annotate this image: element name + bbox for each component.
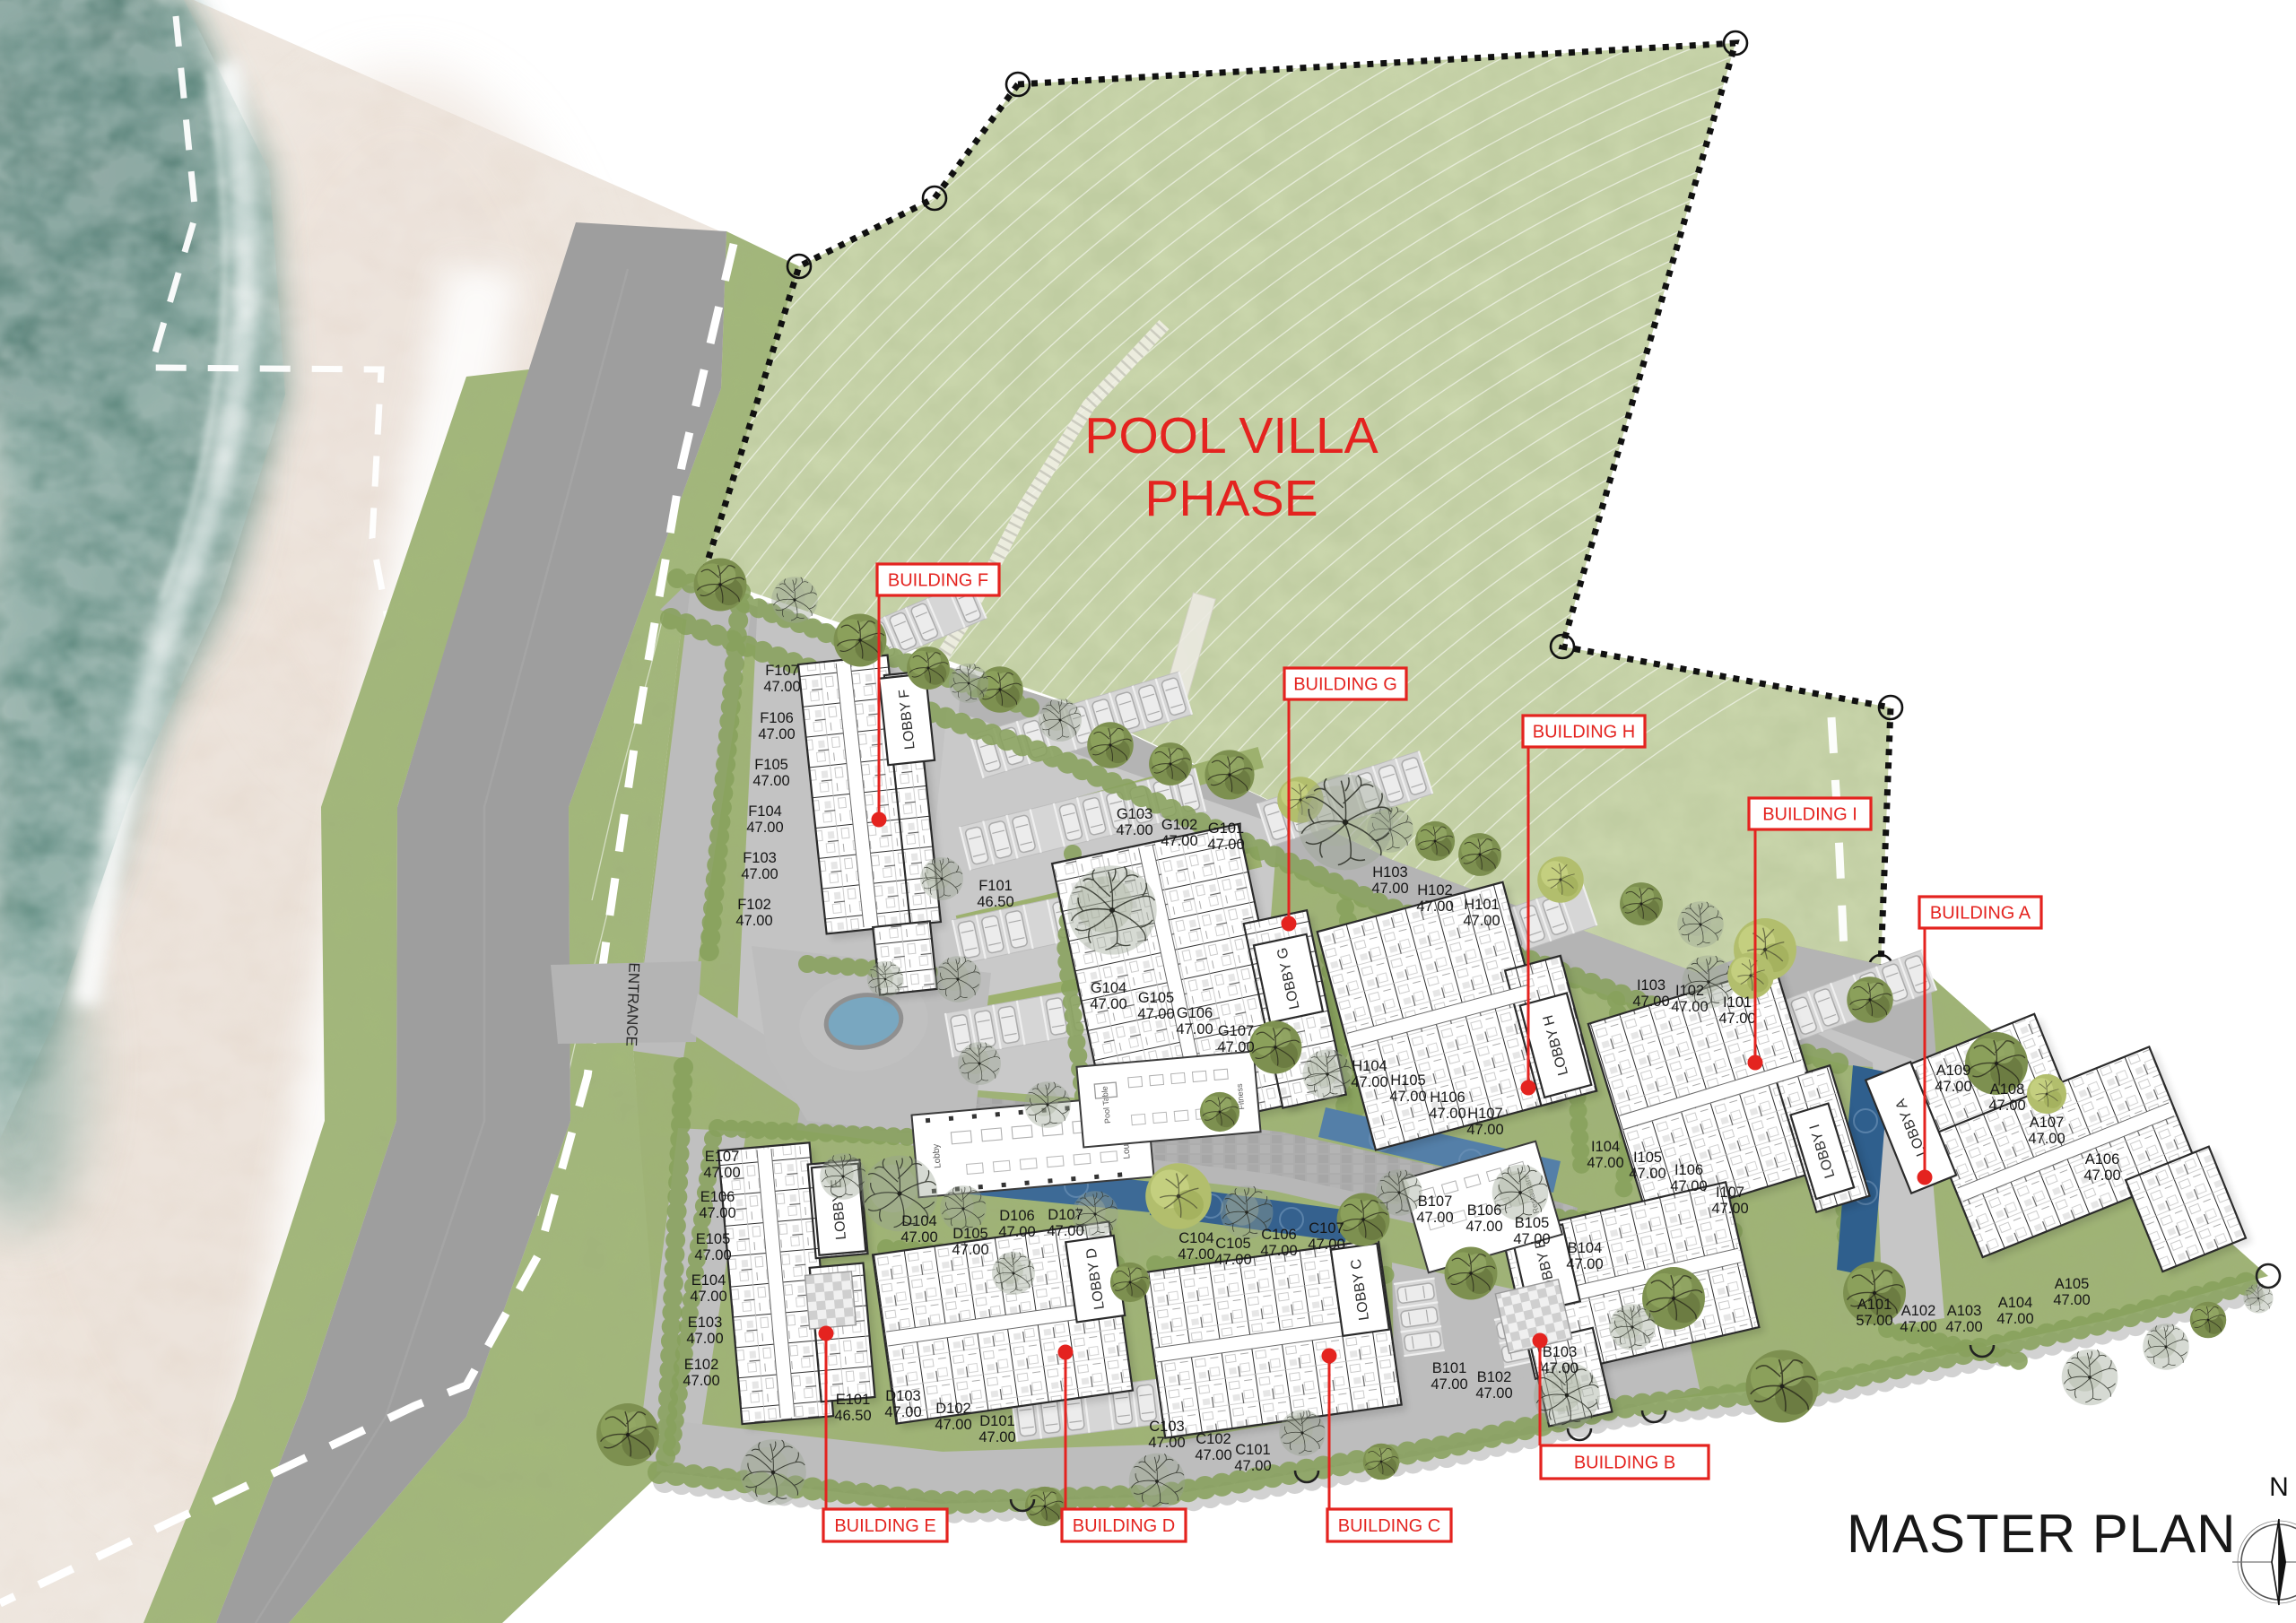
svg-text:BUILDING E: BUILDING E (834, 1516, 935, 1536)
svg-text:I10547.00: I10547.00 (1629, 1150, 1665, 1182)
svg-text:F10447.00: F10447.00 (746, 803, 783, 836)
svg-text:F10547.00: F10547.00 (752, 757, 789, 789)
svg-text:B10747.00: B10747.00 (1416, 1193, 1453, 1226)
svg-text:F10247.00: F10247.00 (735, 897, 772, 929)
svg-text:G10347.00: G10347.00 (1116, 806, 1152, 838)
svg-text:D10547.00: D10547.00 (952, 1226, 988, 1258)
svg-text:E10347.00: E10347.00 (686, 1315, 723, 1347)
svg-text:E10647.00: E10647.00 (699, 1189, 735, 1221)
svg-text:A10747.00: A10747.00 (2028, 1115, 2065, 1147)
svg-text:BUILDING D: BUILDING D (1073, 1516, 1175, 1536)
svg-text:D10447.00: D10447.00 (900, 1213, 937, 1245)
svg-text:A10547.00: A10547.00 (2053, 1276, 2090, 1308)
svg-text:G10147.00: G10147.00 (1207, 820, 1244, 853)
svg-text:MASTER PLAN: MASTER PLAN (1847, 1504, 2236, 1564)
svg-text:A10247.00: A10247.00 (1900, 1303, 1936, 1335)
svg-text:C10547.00: C10547.00 (1214, 1236, 1251, 1268)
svg-text:E10247.00: E10247.00 (683, 1357, 719, 1389)
svg-text:B10347.00: B10347.00 (1541, 1344, 1578, 1376)
svg-text:D10647.00: D10647.00 (998, 1208, 1035, 1240)
svg-text:B10647.00: B10647.00 (1465, 1202, 1502, 1235)
svg-text:H10447.00: H10447.00 (1351, 1058, 1387, 1090)
svg-text:A10347.00: A10347.00 (1945, 1303, 1982, 1335)
svg-text:POOL VILLA: POOL VILLA (1084, 407, 1378, 464)
svg-text:C10647.00: C10647.00 (1260, 1227, 1297, 1259)
svg-text:BUILDING A: BUILDING A (1930, 904, 2031, 924)
svg-text:H10747.00: H10747.00 (1466, 1106, 1503, 1138)
svg-text:BUILDING I: BUILDING I (1762, 805, 1857, 825)
svg-text:ENTRANCE: ENTRANCE (622, 962, 642, 1046)
svg-text:E10447.00: E10447.00 (690, 1272, 726, 1305)
svg-text:H10347.00: H10347.00 (1371, 864, 1408, 897)
svg-text:D10347.00: D10347.00 (884, 1388, 921, 1420)
svg-text:BUILDING C: BUILDING C (1338, 1516, 1440, 1536)
svg-text:C10247.00: C10247.00 (1195, 1431, 1231, 1463)
svg-text:F10747.00: F10747.00 (763, 663, 800, 695)
svg-text:PHASE: PHASE (1144, 470, 1318, 527)
svg-text:I10347.00: I10347.00 (1632, 977, 1669, 1010)
svg-text:D10247.00: D10247.00 (935, 1401, 971, 1433)
svg-text:B10147.00: B10147.00 (1431, 1360, 1467, 1393)
svg-text:A10847.00: A10847.00 (1988, 1081, 2025, 1114)
svg-text:A10447.00: A10447.00 (1996, 1295, 2033, 1327)
svg-text:H10147.00: H10147.00 (1463, 897, 1500, 929)
svg-text:G10447.00: G10447.00 (1090, 980, 1126, 1012)
svg-text:BUILDING B: BUILDING B (1574, 1454, 1675, 1473)
svg-text:G10747.00: G10747.00 (1217, 1023, 1254, 1055)
svg-text:G10247.00: G10247.00 (1161, 817, 1197, 849)
svg-text:I10747.00: I10747.00 (1711, 1185, 1748, 1217)
svg-text:E10747.00: E10747.00 (703, 1149, 740, 1181)
svg-text:H10247.00: H10247.00 (1416, 882, 1453, 915)
svg-text:H10647.00: H10647.00 (1429, 1089, 1465, 1122)
svg-text:C10347.00: C10347.00 (1148, 1419, 1185, 1451)
svg-text:E10146.50: E10146.50 (834, 1392, 871, 1424)
svg-text:BUILDING H: BUILDING H (1533, 723, 1635, 742)
svg-text:C10147.00: C10147.00 (1234, 1442, 1271, 1474)
svg-text:I10247.00: I10247.00 (1671, 983, 1708, 1015)
svg-text:A10157.00: A10157.00 (1856, 1297, 1892, 1329)
svg-text:I10447.00: I10447.00 (1587, 1139, 1623, 1171)
svg-text:H10547.00: H10547.00 (1389, 1072, 1426, 1105)
svg-text:A10947.00: A10947.00 (1935, 1063, 1971, 1095)
svg-text:F10146.50: F10146.50 (977, 878, 1013, 910)
svg-text:C10747.00: C10747.00 (1308, 1220, 1344, 1253)
svg-text:G10647.00: G10647.00 (1176, 1005, 1213, 1037)
svg-text:G10547.00: G10547.00 (1137, 990, 1174, 1022)
svg-text:C10447.00: C10447.00 (1178, 1230, 1214, 1263)
svg-text:A10647.00: A10647.00 (2083, 1151, 2120, 1184)
svg-text:I10147.00: I10147.00 (1718, 994, 1755, 1027)
svg-text:F10347.00: F10347.00 (741, 850, 778, 882)
svg-text:E10547.00: E10547.00 (694, 1231, 731, 1263)
svg-text:F10647.00: F10647.00 (758, 710, 795, 742)
svg-text:BUILDING F: BUILDING F (888, 571, 988, 591)
svg-text:B10547.00: B10547.00 (1513, 1215, 1550, 1247)
svg-text:B10247.00: B10247.00 (1475, 1369, 1512, 1402)
svg-text:D10747.00: D10747.00 (1047, 1207, 1083, 1239)
svg-text:BUILDING G: BUILDING G (1293, 675, 1397, 695)
svg-text:D10147.00: D10147.00 (978, 1413, 1015, 1445)
svg-text:N: N (2269, 1472, 2289, 1502)
svg-text:B10447.00: B10447.00 (1566, 1240, 1603, 1272)
svg-text:I10647.00: I10647.00 (1670, 1162, 1707, 1194)
